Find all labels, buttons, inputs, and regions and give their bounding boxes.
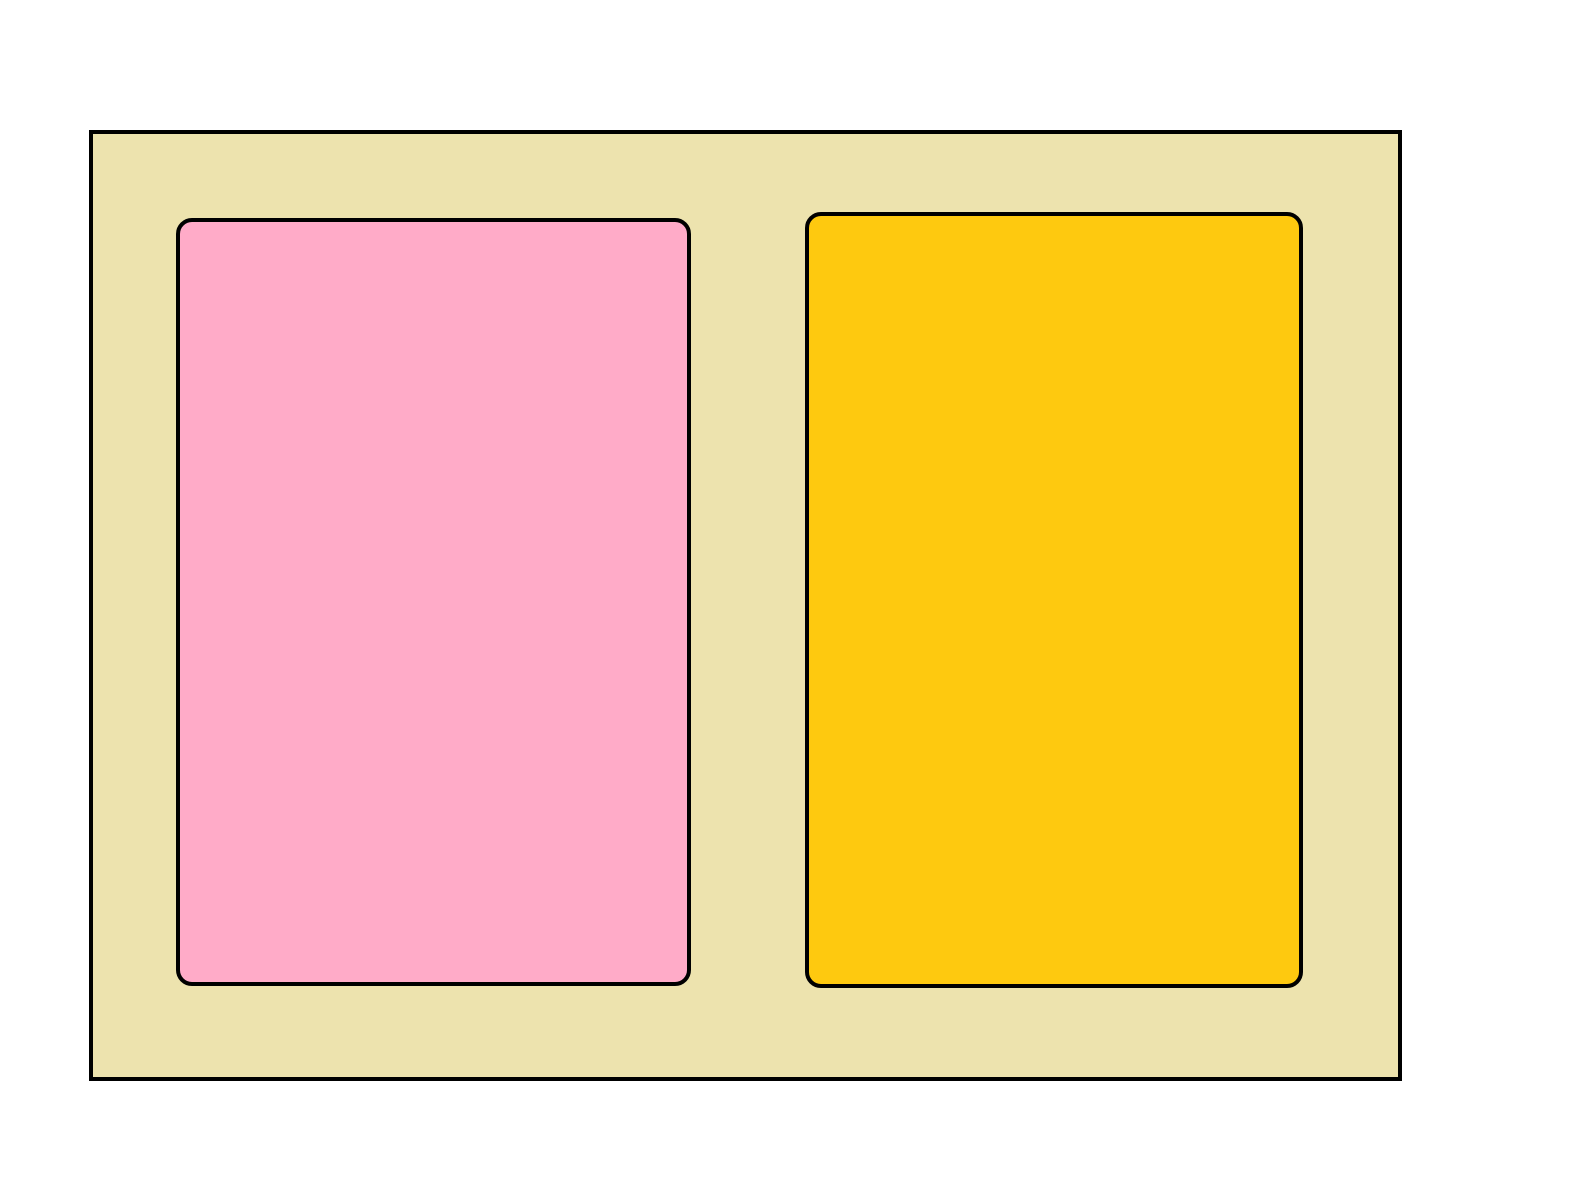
pink-rounded-rectangle: [176, 218, 691, 986]
outer-rectangle: [89, 130, 1402, 1081]
gold-rounded-rectangle: [805, 212, 1303, 988]
drawing-canvas: [0, 0, 1591, 1178]
